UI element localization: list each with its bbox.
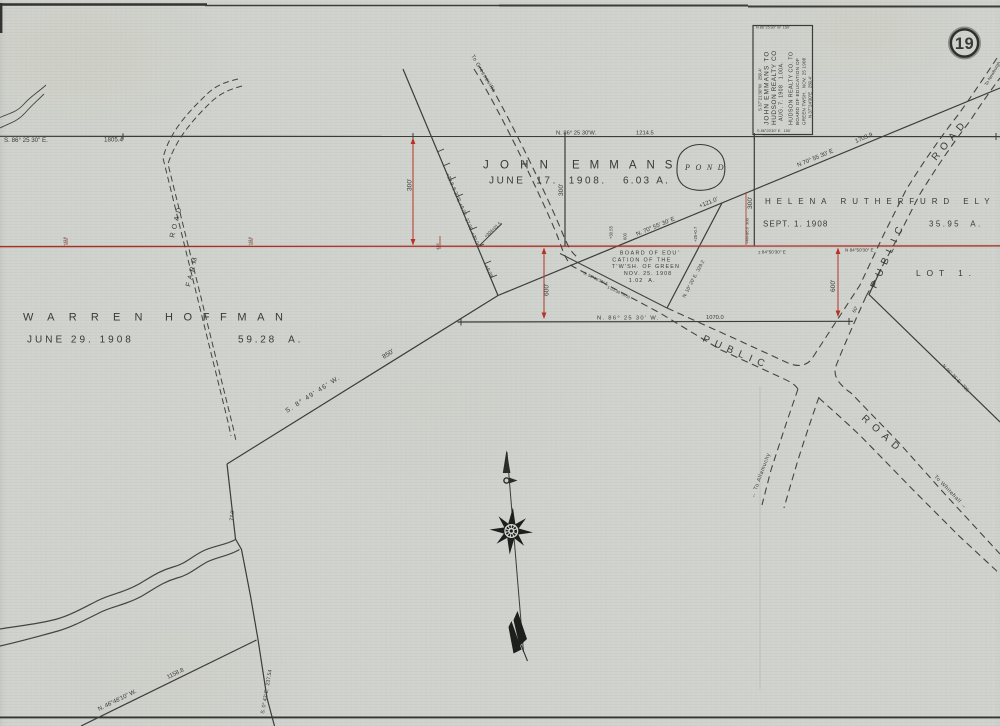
svg-text:HUDSON REALTY CO. TO: HUDSON REALTY CO. TO (789, 52, 795, 125)
svg-text:SEPT. 1. 1908: SEPT. 1. 1908 (763, 220, 828, 229)
svg-text:JUNE 17. 1908.: JUNE 17. 1908. (489, 176, 607, 187)
svg-text:HOFFMAN: HOFFMAN (165, 312, 294, 324)
svg-text:P O N D: P O N D (684, 163, 725, 172)
svg-text:WARREN: WARREN (23, 312, 157, 324)
svg-text:S 37°21'30"W 250.4': S 37°21'30"W 250.4' (758, 68, 763, 111)
svg-text:AUG. 7. 1908 1.00A.: AUG. 7. 1908 1.00A. (779, 62, 785, 121)
svg-text:600': 600' (830, 280, 837, 292)
svg-text:300': 300' (558, 184, 565, 196)
svg-text:S. 86° 25 30" E.: S. 86° 25 30" E. (4, 137, 48, 144)
svg-text:N 46° 25' E 735: N 46° 25' E 735 (941, 363, 971, 393)
svg-text:N 37°24'30"E 250.4': N 37°24'30"E 250.4' (808, 76, 813, 118)
svg-text:59.28 A.: 59.28 A. (238, 335, 303, 346)
svg-text:EMMANS: EMMANS (572, 160, 682, 172)
svg-text:To Whitehall →: To Whitehall → (933, 474, 968, 510)
svg-text:300': 300' (407, 179, 414, 191)
svg-text:77.0': 77.0' (229, 509, 236, 521)
svg-text:+44+86.6 300: +44+86.6 300 (745, 217, 750, 244)
svg-text:GREEN TWSH. NOV. 25 1908: GREEN TWSH. NOV. 25 1908 (802, 57, 807, 125)
svg-text:To Greeneville: To Greeneville (469, 54, 496, 94)
svg-text:S. 50°46'30" E.: S. 50°46'30" E. (583, 270, 611, 287)
svg-text:600: 600 (623, 232, 628, 240)
svg-text:+416: +416 (62, 236, 67, 246)
svg-text:+25+0.7: +25+0.7 (693, 226, 698, 242)
svg-text:To Newburgh: To Newburgh (984, 60, 1000, 86)
svg-text:600': 600' (544, 284, 551, 296)
svg-text:S 20°E: S 20°E (450, 186, 462, 203)
svg-text:S. 0° 43' E. 237.54: S. 0° 43' E. 237.54 (260, 669, 274, 714)
svg-text:ROAD: ROAD (930, 117, 971, 163)
svg-text:± 84°50'30" E: ± 84°50'30" E (758, 250, 786, 255)
svg-text:19: 19 (955, 35, 974, 53)
svg-text:T'W'SH. OF GREEN: T'W'SH. OF GREEN (612, 264, 680, 270)
svg-text:850': 850' (381, 348, 395, 361)
svg-text:NOV. 25. 1908: NOV. 25. 1908 (624, 271, 672, 277)
svg-text:6.03 A.: 6.03 A. (623, 176, 670, 187)
svg-text:BOARD OF EDU': BOARD OF EDU' (620, 251, 680, 257)
svg-text:300': 300' (747, 197, 754, 209)
svg-text:JOHN EMMANS TO: JOHN EMMANS TO (764, 50, 771, 125)
svg-text:CATION OF THE: CATION OF THE (612, 258, 671, 264)
svg-text:JUNE 29. 1908: JUNE 29. 1908 (27, 335, 134, 346)
svg-text:N. 86° 25 30'W.: N. 86° 25 30'W. (556, 131, 597, 137)
svg-text:1158.8: 1158.8 (166, 667, 185, 681)
svg-text:+304+01.5: +304+01.5 (483, 220, 502, 238)
svg-text:S 86°25'30" E 150': S 86°25'30" E 150' (757, 129, 791, 133)
svg-text:1214.5: 1214.5 (636, 131, 654, 137)
svg-text:HUDSON REALTY CO: HUDSON REALTY CO (771, 50, 778, 125)
svg-text:BOARD OF EDUCATION OF: BOARD OF EDUCATION OF (795, 58, 800, 125)
svg-text:N. 86° 25 30' W.: N. 86° 25 30' W. (597, 316, 660, 322)
svg-text:N 86°25'30" W 150': N 86°25'30" W 150' (756, 26, 790, 30)
svg-text:N. 70° 55' 30' E: N. 70° 55' 30' E (635, 216, 676, 237)
svg-text:1-23.38 +5.50: 1-23.38 +5.50 (607, 284, 632, 300)
svg-text:1070.0: 1070.0 (706, 315, 724, 321)
svg-text:1.02 A.: 1.02 A. (629, 278, 656, 284)
svg-text:N. 10° 20' E. 329.2: N. 10° 20' E. 329.2 (681, 259, 706, 299)
svg-text:+29.8: +29.8 (444, 172, 455, 186)
svg-text:S. 8° 49' 46' W.: S. 8° 49' 46' W. (284, 373, 342, 414)
svg-text:+416: +416 (247, 236, 252, 246)
svg-text:JOHN: JOHN (483, 160, 559, 172)
svg-text:+30.55: +30.55 (609, 225, 614, 239)
svg-text:+9.08: +9.08 (483, 264, 494, 278)
svg-text:LOT 1.: LOT 1. (916, 268, 977, 278)
svg-text:35.95 A.: 35.95 A. (929, 220, 983, 229)
svg-text:← To Allamuchy: ← To Allamuchy (750, 452, 772, 499)
svg-text:N 84°50'30" E: N 84°50'30" E (845, 248, 874, 253)
svg-text:+9.06: +9.06 (457, 202, 468, 216)
svg-text:416: 416 (435, 243, 440, 250)
svg-text:ROAD: ROAD (859, 413, 906, 457)
svg-text:1703.9: 1703.9 (854, 132, 874, 145)
svg-text:27.08: 27.08 (463, 217, 473, 231)
svg-text:1805.4: 1805.4 (104, 137, 123, 144)
svg-text:HELENA RUTHERFURD ELY: HELENA RUTHERFURD ELY (765, 197, 995, 206)
